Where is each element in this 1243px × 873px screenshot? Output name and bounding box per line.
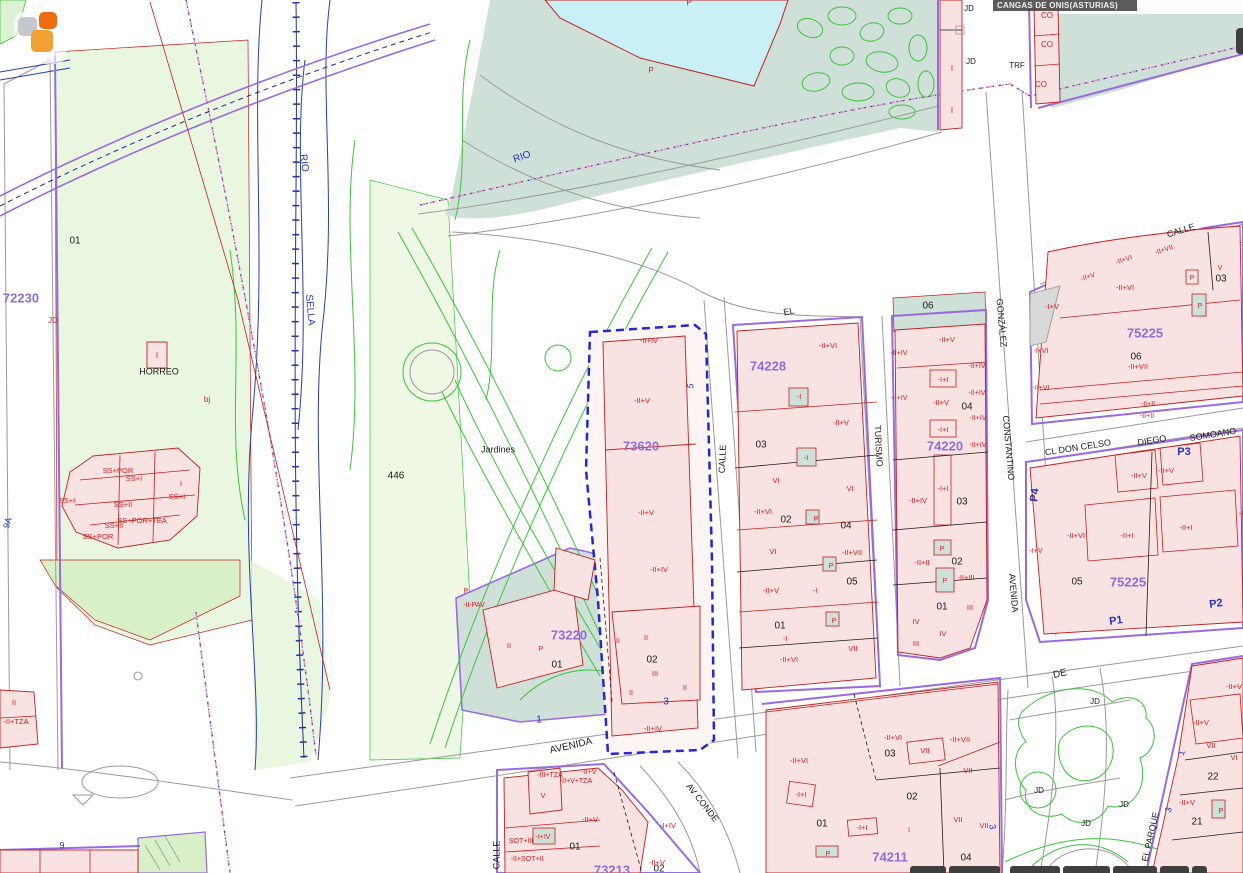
map-label: Jardines [481, 444, 516, 454]
map-label: -II+III [957, 573, 974, 582]
map-label: -II+SOT+II [511, 856, 544, 863]
map-label: VII [848, 644, 857, 653]
map-label: I [951, 64, 953, 73]
map-label: 9A [1, 516, 14, 530]
map-label: SS+I [59, 496, 75, 505]
map-label: 01 [69, 236, 81, 247]
map-label: VII [963, 766, 972, 775]
map-label: 03 [956, 497, 968, 508]
map-label: -II+VI [754, 507, 772, 516]
map-label: -II+VI [819, 341, 837, 350]
map-label: -I+I [937, 375, 948, 384]
map-label: I [908, 825, 910, 834]
map-label: P [829, 563, 834, 570]
map-label: -II+V [1131, 471, 1147, 480]
bottom-bar-segment [1113, 866, 1157, 873]
map-label: -II+V [1179, 798, 1195, 807]
map-label: -II+II [914, 558, 929, 567]
map-label: I [180, 479, 182, 488]
map-label: -II+V [634, 396, 650, 405]
map-label: JD [1119, 800, 1129, 809]
map-label: P [686, 0, 691, 7]
map-label: III [652, 669, 658, 678]
map-label: CONSTANTINO [1001, 415, 1017, 480]
map-label: -II+IV [970, 415, 987, 422]
map-label: GONZÁLEZ [995, 298, 1009, 348]
map-label: P [832, 618, 837, 625]
map-label: -I+VI [1034, 348, 1049, 355]
location-bar: CANGAS DE ONIS(ASTURIAS) [993, 0, 1137, 11]
map-label: TRF [1009, 61, 1025, 70]
map-label: -I+I [795, 790, 806, 799]
map-label: V [540, 791, 545, 800]
app-logo[interactable] [14, 12, 66, 64]
map-label: -II+IV [891, 395, 908, 402]
map-label: TURISMO [873, 425, 885, 467]
map-label: SS+II [105, 521, 124, 530]
bottom-bar-segment [910, 866, 946, 873]
map-label: -II+IV [640, 336, 658, 345]
location-title: CANGAS DE ONIS(ASTURIAS) [997, 1, 1118, 10]
map-label: VI [846, 484, 853, 493]
map-label: 06 [922, 301, 934, 312]
map-label: 21 [1191, 817, 1203, 828]
map-label: II [629, 690, 633, 697]
map-label: -II+V [1226, 682, 1242, 691]
map-label: -II+VI [884, 733, 902, 742]
map-canvas[interactable]: 7223073620732207422874220752257522574211… [0, 0, 1243, 873]
map-label: VI [1230, 753, 1237, 762]
map-label: -I [783, 634, 788, 643]
map-label: JD [966, 57, 976, 66]
map-label: 04 [961, 402, 973, 413]
map-label: -II+I [1179, 523, 1192, 532]
map-label: -II+VII [1128, 362, 1148, 371]
map-label: -II+VI [1116, 283, 1134, 292]
map-label: -II+V [933, 398, 949, 407]
map-label: 446 [388, 471, 405, 482]
map-label: JD [1081, 819, 1091, 828]
map-label: 73220 [551, 627, 587, 642]
map-label: -I+I [937, 425, 948, 434]
map-label: P1 [1108, 614, 1123, 628]
map-label: -II+V+TZA [560, 778, 593, 785]
map-label: 03 [755, 440, 767, 451]
map-label: -I [1239, 509, 1243, 518]
map-label: -II+VI [780, 655, 798, 664]
map-label: 02 [646, 655, 658, 666]
map-label: P [1198, 303, 1203, 310]
map-label: I [156, 351, 158, 360]
map-label: 01 [569, 842, 581, 853]
map-label: EL [782, 305, 795, 317]
map-label: P [648, 66, 653, 75]
map-label: JD [1034, 786, 1044, 795]
map-label: -II+V [833, 418, 849, 427]
map-label: 75225 [1110, 574, 1146, 589]
map-label: P [814, 516, 819, 523]
bottom-bar-segment [1063, 866, 1110, 873]
map-label: P [539, 646, 544, 653]
map-label: -II+VI [790, 756, 808, 765]
map-label: JD [1090, 697, 1100, 706]
map-label: II [644, 635, 648, 642]
map-label: AVENIDA [1007, 573, 1020, 613]
map-label: 04 [840, 521, 852, 532]
map-label: -II+VI [1033, 385, 1050, 392]
map-label: 73213 [594, 862, 630, 873]
map-label: VII [979, 821, 988, 830]
map-label: VII [920, 746, 929, 755]
map-label: -II+IV [969, 363, 986, 370]
map-label: -II+II [1140, 413, 1154, 420]
map-label: 06 [1130, 352, 1142, 363]
map-label: 22 [1207, 772, 1219, 783]
map-label: -I+V [1045, 302, 1059, 311]
map-label: -II+VII [842, 548, 862, 557]
map-label: -II+VI [1067, 531, 1085, 540]
map-label: 72230 [3, 290, 39, 305]
map-label: -II+IV [909, 496, 927, 505]
side-panel-tab[interactable] [1236, 28, 1243, 54]
map-label: -II+V [582, 769, 597, 776]
map-label: VI [772, 476, 779, 485]
map-label: 01 [551, 660, 563, 671]
map-label: AV CONDE [684, 781, 720, 824]
map-label: DIEGO [1137, 433, 1167, 447]
map-label: 02 [951, 557, 963, 568]
map-label: P3 [1177, 446, 1190, 458]
logo-amber-square-icon [31, 30, 53, 52]
map-label: -II+II [1141, 401, 1155, 408]
map-label: III [913, 639, 919, 648]
map-label: VI [769, 547, 776, 556]
map-label: -I+I [856, 823, 867, 832]
map-label: P4 [1028, 487, 1041, 502]
map-label: CO [1035, 80, 1047, 89]
map-label: -I+V [1029, 548, 1042, 555]
map-label: DE [1052, 667, 1068, 681]
map-label: P2 [1208, 597, 1223, 611]
map-label: -II+IV [891, 350, 908, 357]
map-label: 03 [1215, 274, 1227, 285]
park-green-areas [0, 0, 470, 873]
map-label: CALLE [717, 444, 728, 473]
map-label: III [967, 603, 973, 612]
map-label: -II+V [1193, 718, 1209, 727]
map-label: 74211 [872, 849, 907, 864]
map-label: -I [804, 453, 809, 462]
map-label: 01 [936, 602, 948, 613]
map-label: -II+IV [644, 724, 662, 733]
map-label: SOT+III [509, 838, 533, 845]
map-label: CALLE [491, 841, 501, 870]
map-label: VII [953, 815, 962, 824]
map-label: -II+I [1120, 531, 1133, 540]
map-label: II [507, 641, 511, 650]
map-label: IV [912, 617, 919, 626]
map-label: -I [813, 586, 818, 595]
map-label: HORREO [139, 366, 179, 376]
map-label: -II+TZA [3, 717, 28, 726]
map-label: SS+II [114, 500, 133, 509]
map-label: 02 [780, 515, 792, 526]
map-label: 1 [536, 715, 542, 726]
map-label: 73620 [623, 438, 659, 453]
map-label: -I+IV [660, 821, 676, 830]
bottom-bar-segment [949, 866, 1000, 873]
map-label: -II-PAV [463, 602, 485, 609]
map-label: -I [797, 392, 802, 401]
map-label: -II+IV [969, 390, 986, 397]
bottom-bar-segment [1192, 866, 1207, 873]
map-label: 05 [1071, 577, 1083, 588]
logo-orange-square-icon [39, 12, 57, 29]
map-label: II [616, 638, 620, 645]
map-label: P [1190, 275, 1195, 282]
map-label: SS+I [126, 474, 142, 483]
map-label: SS+I [169, 492, 185, 501]
map-label: V [1218, 265, 1223, 272]
map-label: 75225 [1127, 325, 1163, 340]
map-label: 01 [774, 621, 786, 632]
map-label: IV [939, 629, 946, 638]
map-label: 3 [663, 697, 669, 708]
map-label: SS+POR [83, 532, 114, 541]
map-label: P [464, 588, 469, 595]
map-label: 9 [59, 840, 64, 850]
map-label: I [951, 106, 953, 115]
map-label: -I+IV [536, 834, 551, 841]
map-label: 04 [960, 853, 972, 864]
map-label: 74228 [750, 358, 786, 373]
map-label: JD [964, 4, 974, 13]
bottom-bar-segment [1010, 866, 1060, 873]
map-label: 02 [906, 792, 918, 803]
map-label: 05 [846, 577, 858, 588]
map-label: CO [1041, 40, 1053, 49]
map-label: RIO [297, 154, 310, 173]
map-label: P [940, 546, 945, 553]
map-label: -II+V [638, 508, 654, 517]
map-label: -II+V [1158, 466, 1174, 475]
map-label: II [683, 685, 687, 692]
map-label: -II+IV [650, 565, 668, 574]
map-label: P [943, 578, 948, 585]
map-label: 01 [816, 819, 828, 830]
map-label: -I+I [937, 484, 948, 493]
map-label: P [1219, 808, 1224, 815]
map-label: SS+POR+TEA [117, 516, 167, 525]
map-label: -II+V [763, 586, 779, 595]
map-viewport[interactable]: { "header": { "title": "CANGAS DE ONIS(A… [0, 0, 1243, 873]
bottom-bar-segment [1160, 866, 1189, 873]
map-label: 03 [884, 749, 896, 760]
map-label: CO [1041, 11, 1053, 20]
map-label: SELLA [303, 294, 317, 326]
map-label: 74220 [927, 438, 963, 453]
map-label: bj [204, 395, 210, 404]
map-label: P [826, 851, 831, 858]
map-label: VII [1206, 741, 1215, 750]
map-label: -II+VII [950, 735, 970, 744]
map-label: -II+V [939, 335, 955, 344]
map-label: II [12, 698, 16, 707]
map-label: -II+V [649, 858, 665, 867]
map-label: -II+V [582, 815, 598, 824]
map-label: -II+IV [970, 442, 987, 449]
map-label: JD [48, 316, 58, 325]
